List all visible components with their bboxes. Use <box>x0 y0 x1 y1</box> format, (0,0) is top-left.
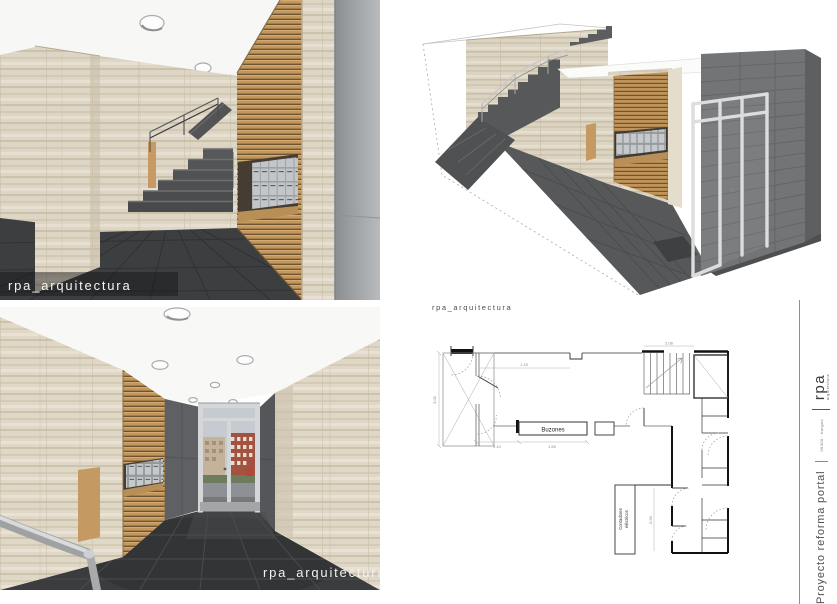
meter-room-label-1: Contadores <box>618 508 623 530</box>
mailbox-wall <box>608 67 682 208</box>
wood-wall-panel <box>586 123 596 161</box>
plan-dimensions <box>437 346 694 551</box>
travertine-pillar <box>35 46 100 293</box>
brand-logo: rpa arquitectura <box>812 374 831 400</box>
titleblock-rule <box>799 300 800 604</box>
door-handle <box>224 468 227 471</box>
door-handle <box>730 188 734 192</box>
plan-stairs <box>644 353 690 394</box>
mailboxes <box>252 157 298 209</box>
presentation-sheet: rpa_arquitectura <box>0 0 837 604</box>
floor-plan: Buzones Contadores eléctricos 3.00 2.10 … <box>432 338 747 566</box>
meter-room-label-2: eléctricos <box>624 510 629 528</box>
wood-wall-panel <box>78 467 100 542</box>
dim-label: 1.15 <box>520 362 529 367</box>
axonometric-caption: rpa_arquitectura <box>432 303 512 312</box>
project-details: 09400 · burgos <box>819 419 824 452</box>
dim-label: 1.55 <box>548 444 557 449</box>
plan-walls <box>443 346 728 553</box>
right-pillar <box>302 0 335 300</box>
meter-room: Contadores eléctricos <box>615 485 635 554</box>
entrance-door <box>693 94 767 276</box>
watermark-text: rpa_arquitectura <box>263 565 380 580</box>
plan-partition <box>476 353 479 446</box>
dim-label: 0.90 <box>648 515 653 524</box>
mailboxes-plan: Buzones <box>519 422 614 435</box>
wood-wall-panel <box>148 142 156 188</box>
titleblock: Proyecto reforma portal 09400 · burgos r… <box>806 306 836 604</box>
titleblock-separator <box>815 461 828 462</box>
render-hall-stairs: rpa_arquitectura <box>0 0 380 300</box>
titleblock-separator <box>812 409 830 410</box>
brand-name: rpa <box>812 374 827 400</box>
dim-label: 2.10 <box>493 444 502 449</box>
dim-label: 3.00 <box>432 395 437 404</box>
watermark-text: rpa_arquitectura <box>8 278 131 293</box>
watermark: rpa_arquitectura <box>0 272 178 296</box>
mailboxes-label: Buzones <box>541 428 564 434</box>
brand-subtitle: arquitectura <box>827 374 831 400</box>
dim-label: 2.08 <box>665 341 674 346</box>
render-hall-entrance: rpa_arquitectura <box>0 307 380 590</box>
project-title: Proyecto reforma portal <box>815 471 827 604</box>
door-reflection <box>186 512 276 539</box>
gray-tile-wall <box>335 0 380 300</box>
axonometric-view <box>420 12 832 295</box>
